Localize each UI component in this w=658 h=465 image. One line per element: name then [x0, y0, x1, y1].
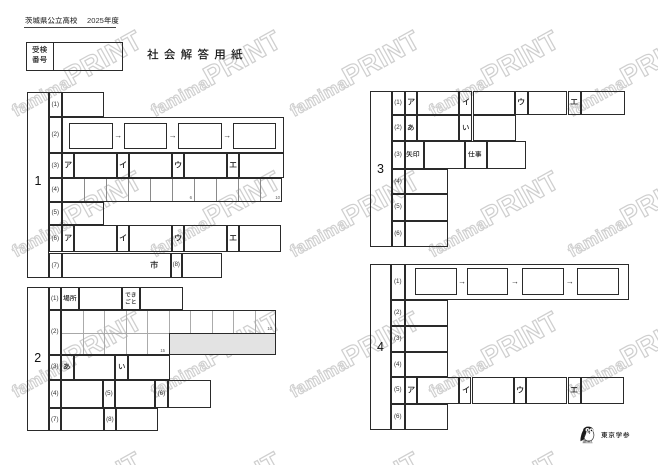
svg-text:famima: famima [287, 214, 351, 261]
svg-text:famima: famima [565, 214, 629, 261]
svg-text:PRINT: PRINT [477, 165, 565, 232]
svg-text:famima: famima [148, 73, 212, 120]
svg-text:PRINT: PRINT [60, 446, 148, 465]
svg-text:PRINT: PRINT [477, 446, 565, 465]
svg-text:PRINT: PRINT [199, 446, 287, 465]
svg-text:famima: famima [287, 354, 351, 401]
svg-text:PRINT: PRINT [477, 25, 565, 92]
svg-text:PRINT: PRINT [338, 25, 426, 92]
svg-text:famima: famima [287, 73, 351, 120]
svg-text:PRINT: PRINT [616, 446, 658, 465]
svg-text:PRINT: PRINT [338, 446, 426, 465]
svg-text:PRINT: PRINT [477, 306, 565, 373]
